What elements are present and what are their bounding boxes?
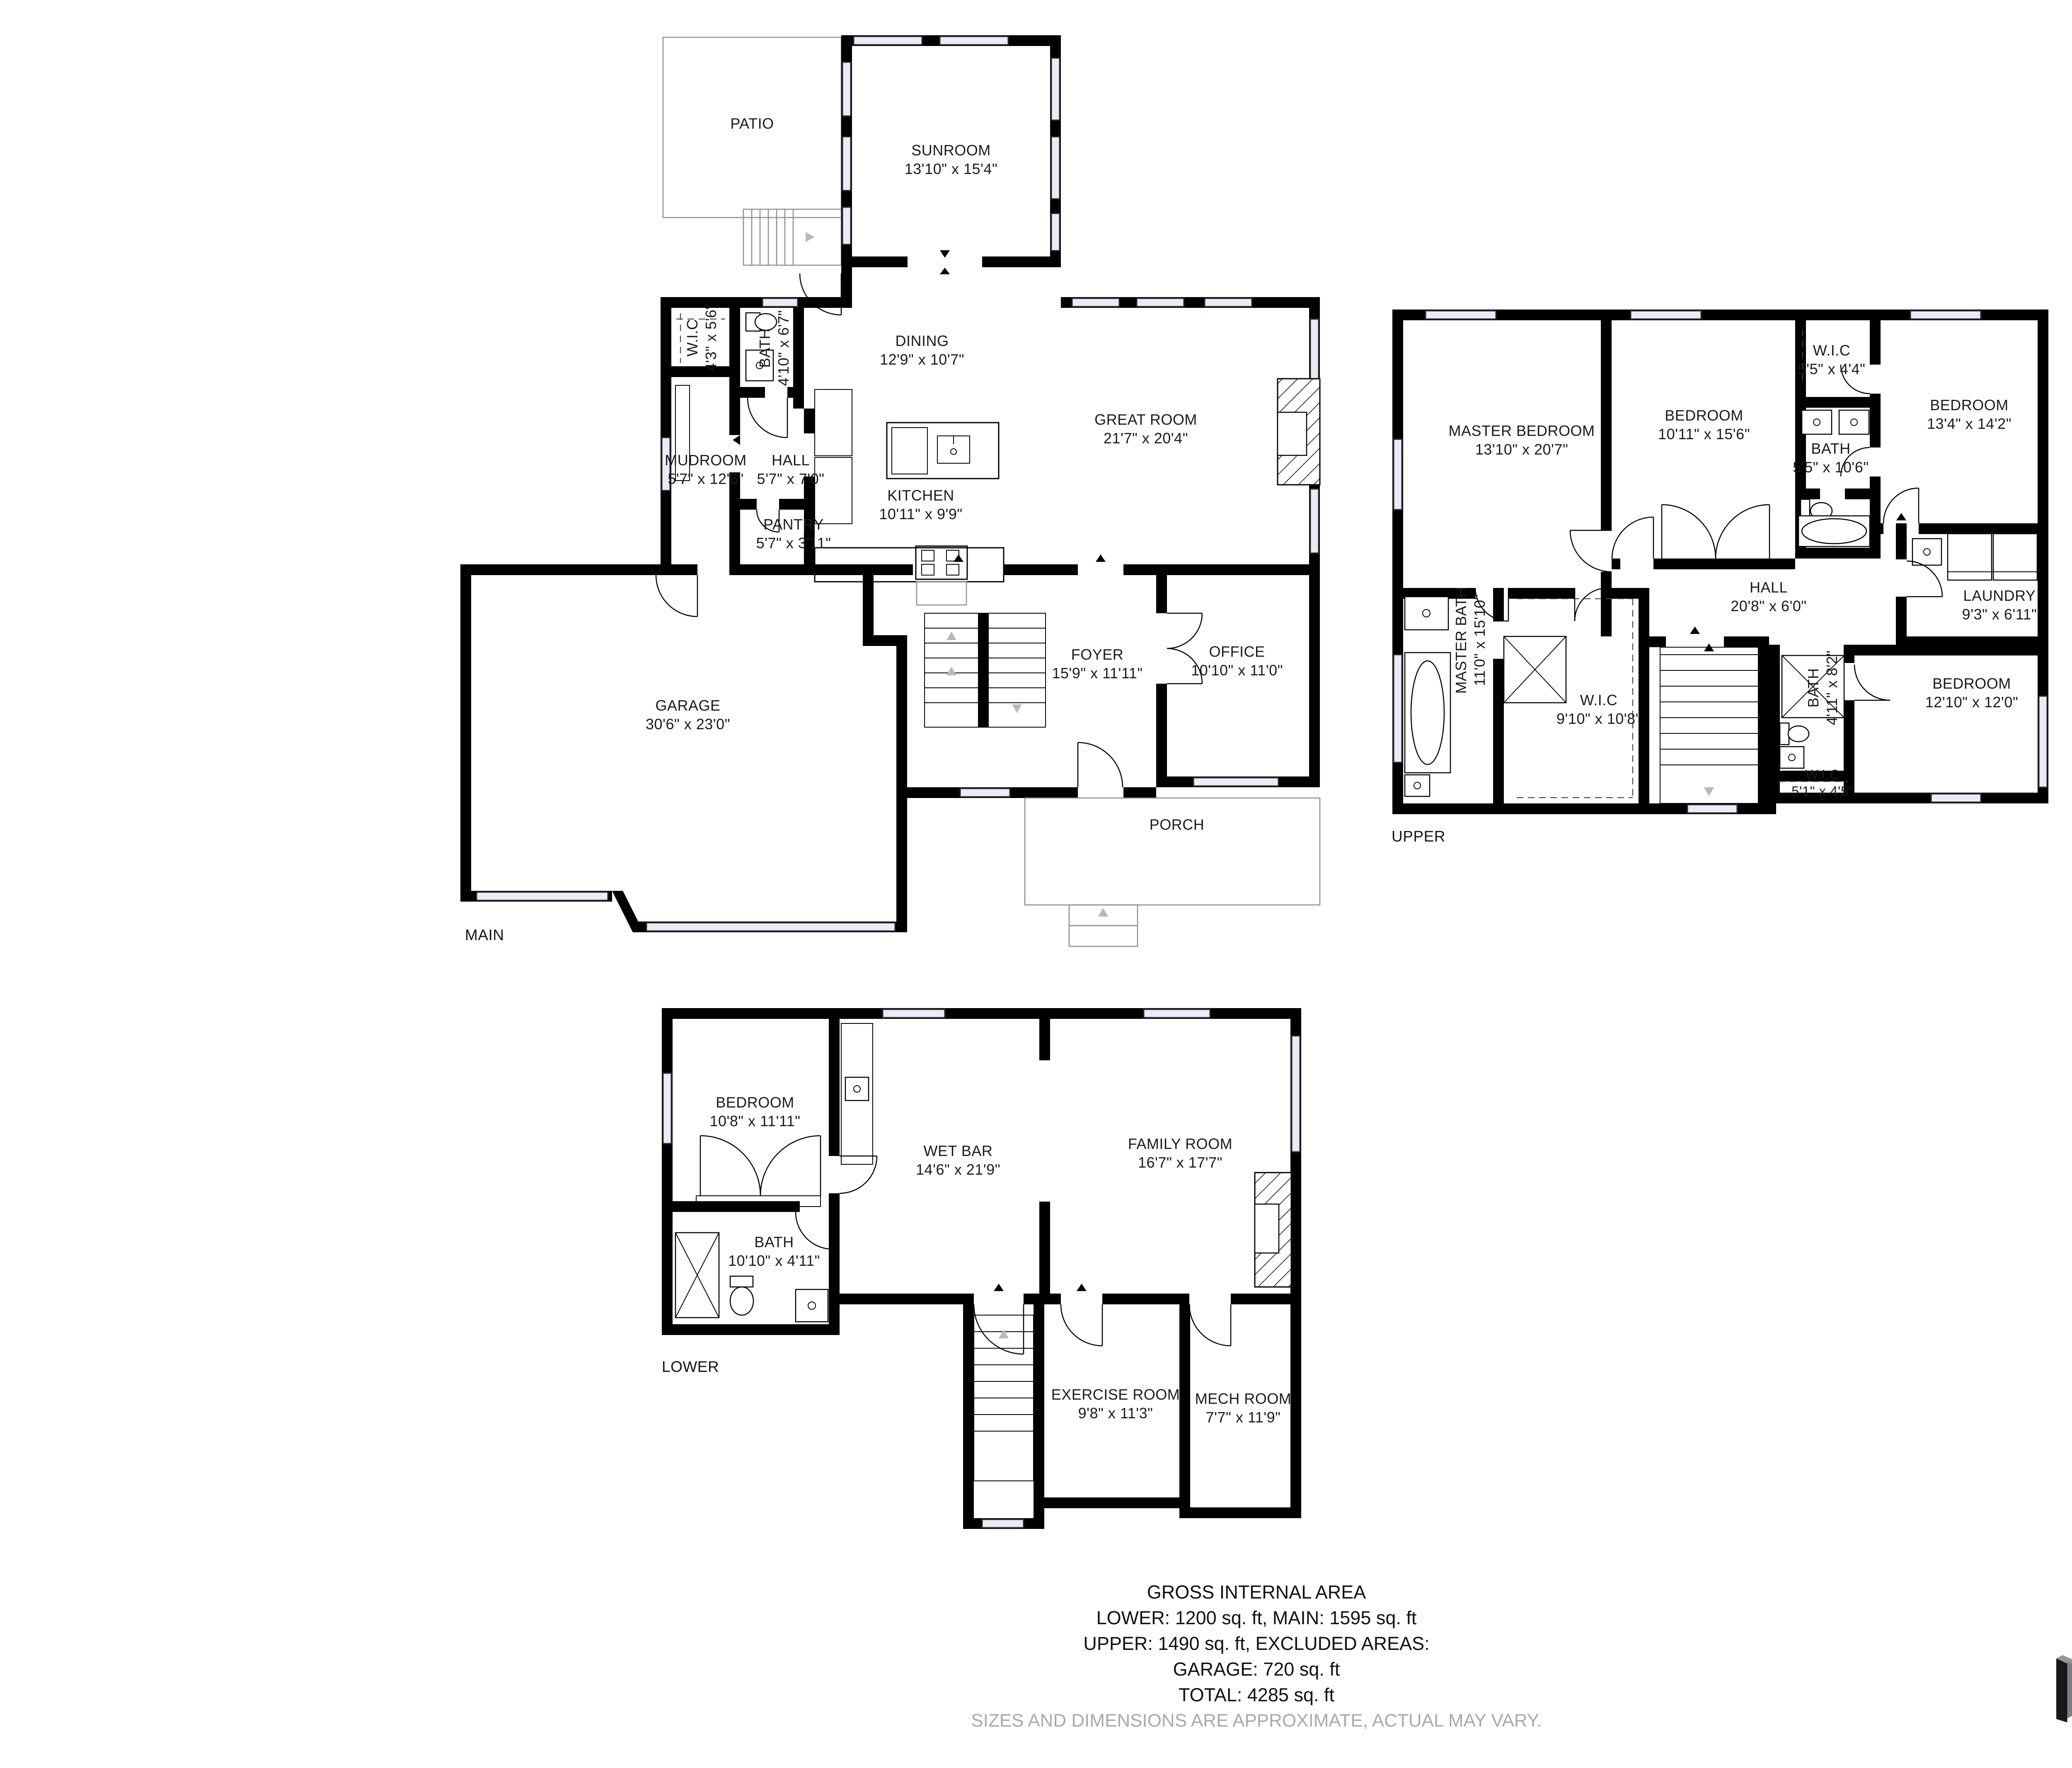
summary-line-2: UPPER: 1490 sq. ft, EXCLUDED AREAS:	[971, 1631, 1542, 1657]
main-patio-outline	[663, 37, 841, 265]
room-label-upper-wic-big: W.I.C9'10" x 10'8"	[1556, 691, 1641, 728]
lower-fireplace	[1255, 1173, 1291, 1287]
lower-stairs	[974, 1315, 1034, 1481]
lower-wetbar-fixtures	[840, 1023, 877, 1193]
room-label-exercise-room: EXERCISE ROOM9'8" x 11'3"	[1051, 1385, 1180, 1422]
room-label-master-bedroom: MASTER BEDROOM13'10" x 20'7"	[1448, 421, 1595, 459]
room-label-main-wic: W.I.C4'3" x 5'6"	[683, 304, 720, 372]
room-label-dining: DINING12'9" x 10'7"	[880, 331, 964, 369]
room-label-upper-hall: HALL20'8" x 6'0"	[1731, 578, 1806, 615]
main-fireplace	[1278, 379, 1320, 485]
room-label-great-room: GREAT ROOM21'7" x 20'4"	[1094, 410, 1197, 447]
summary-line-1: LOWER: 1200 sq. ft, MAIN: 1595 sq. ft	[971, 1605, 1542, 1631]
room-label-main-bath: BATH4'10" x 6'7"	[755, 310, 793, 386]
main-sunroom-opening	[908, 256, 982, 267]
room-label-garage: GARAGE30'6" x 23'0"	[646, 696, 730, 733]
floor-tag-main: MAIN	[465, 926, 504, 944]
floor-tag-lower: LOWER	[662, 1358, 719, 1376]
matterport-logo-icon	[2056, 1655, 2072, 1725]
room-label-sunroom: SUNROOM13'10" x 15'4"	[905, 141, 997, 178]
summary-title: GROSS INTERNAL AREA	[971, 1579, 1542, 1605]
upper-bath-fixtures	[1798, 410, 1870, 547]
lower-closet-doors	[696, 1136, 821, 1207]
summary-line-4: TOTAL: 4285 sq. ft	[971, 1682, 1542, 1708]
room-label-lower-bedroom: BEDROOM10'8" x 11'11"	[709, 1093, 800, 1130]
summary-line-3: GARAGE: 720 sq. ft	[971, 1657, 1542, 1682]
area-summary: GROSS INTERNAL AREA LOWER: 1200 sq. ft, …	[971, 1579, 1542, 1734]
lower-doors	[974, 1304, 1231, 1354]
room-label-upper-bedroom-3: BEDROOM12'10" x 12'0"	[1925, 674, 2018, 711]
room-label-pantry: PANTRY5'7" x 3'11"	[756, 515, 831, 552]
upper-laundry-fixtures	[1912, 534, 2037, 580]
room-label-upper-wic-small: W.I.C5'5" x 4'4"	[1798, 341, 1866, 378]
room-label-master-bath: MASTER BATH11'0" x 15'10"	[1452, 587, 1489, 694]
room-label-laundry: LAUNDRY9'3" x 6'11"	[1962, 586, 2037, 624]
room-label-upper-bedroom-2: BEDROOM13'4" x 14'2"	[1927, 396, 2011, 433]
room-label-mech-room: MECH ROOM7'7" x 11'9"	[1195, 1389, 1292, 1427]
upper-floor-plan	[1392, 310, 2048, 814]
room-label-office: OFFICE10'10" x 11'0"	[1191, 642, 1283, 680]
matterport-logo: Matterport	[2056, 1655, 2072, 1725]
upper-stairs	[1660, 643, 1758, 803]
floor-tag-upper: UPPER	[1392, 828, 1445, 845]
room-label-upper-hall-bath: BATH4'11" x 8'2"	[1804, 651, 1841, 726]
room-label-kitchen: KITCHEN10'11" x 9'9"	[879, 486, 962, 523]
room-label-upper-bath: BATH5'5" x 10'6"	[1793, 439, 1869, 476]
room-label-main-hall: HALL5'7" x 7'0"	[757, 451, 825, 488]
room-label-porch: PORCH	[1150, 815, 1205, 834]
room-label-wet-bar: WET BAR14'6" x 21'9"	[916, 1142, 1000, 1179]
room-label-mudroom: MUDROOM5'7" x 12'6"	[665, 451, 746, 488]
room-label-upper-bedroom-1: BEDROOM10'11" x 15'6"	[1658, 406, 1750, 443]
room-label-family-room: FAMILY ROOM16'7" x 17'7"	[1128, 1134, 1232, 1172]
room-label-lower-bath: BATH10'10" x 4'11"	[728, 1233, 820, 1270]
room-label-upper-wic-2: W.I.C5'1" x 4'5"	[1791, 767, 1854, 800]
room-label-foyer: FOYER15'9" x 11'11"	[1052, 645, 1143, 682]
room-label-patio: PATIO	[730, 114, 774, 133]
floorplan-drawing	[0, 0, 2072, 1768]
upper-closet-doors	[1662, 505, 1769, 559]
summary-disclaimer: SIZES AND DIMENSIONS ARE APPROXIMATE, AC…	[971, 1708, 1542, 1734]
